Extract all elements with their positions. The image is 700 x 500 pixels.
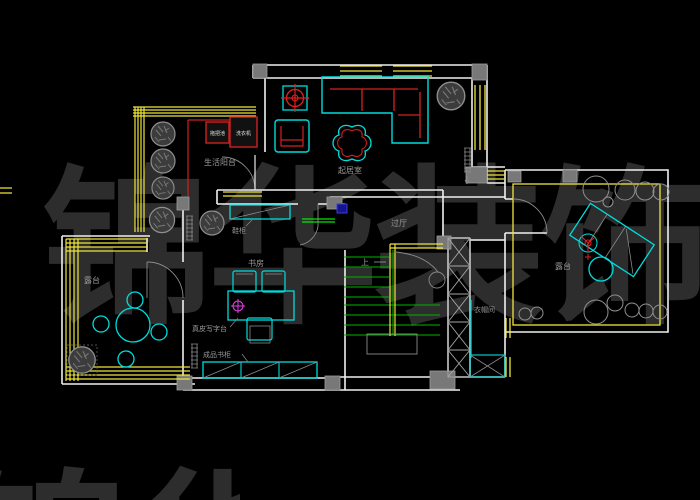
plant-icon xyxy=(151,149,175,173)
cloakroom-label: 衣帽间 xyxy=(474,305,495,314)
steps-marker-icon xyxy=(186,216,193,240)
door-frame-marker xyxy=(337,204,347,213)
mop-sink-label: 拖把池 xyxy=(210,130,225,137)
living-room-label: 起居室 xyxy=(338,165,362,175)
hall-label: 过厅 xyxy=(391,218,407,228)
study-label: 书房 xyxy=(248,258,264,268)
plant-icon xyxy=(152,177,174,199)
plant-icon xyxy=(151,122,175,146)
shoe-cabinet-label: 鞋柜 xyxy=(232,226,246,235)
terrace-left-label: 露台 xyxy=(84,275,100,285)
cad-floorplan-canvas: 锦华装饰 锦华装饰 xyxy=(0,0,700,500)
plant-icon xyxy=(437,82,465,110)
desk-label: 真皮写字台 xyxy=(192,324,227,333)
terrace-right-label: 露台 xyxy=(555,261,571,271)
washing-machine-label: 洗衣机 xyxy=(236,130,251,137)
floorplan-drawing: 锦华装饰 锦华装饰 xyxy=(0,0,700,500)
steps-marker-icon xyxy=(464,148,471,172)
bookcase-label: 成品书柜 xyxy=(203,350,231,359)
stairs-up-label: 上 xyxy=(361,258,369,267)
plant-icon xyxy=(149,207,174,232)
plant-icon xyxy=(69,347,95,373)
steps-marker-icon xyxy=(191,344,198,368)
plant-icon xyxy=(200,211,224,235)
